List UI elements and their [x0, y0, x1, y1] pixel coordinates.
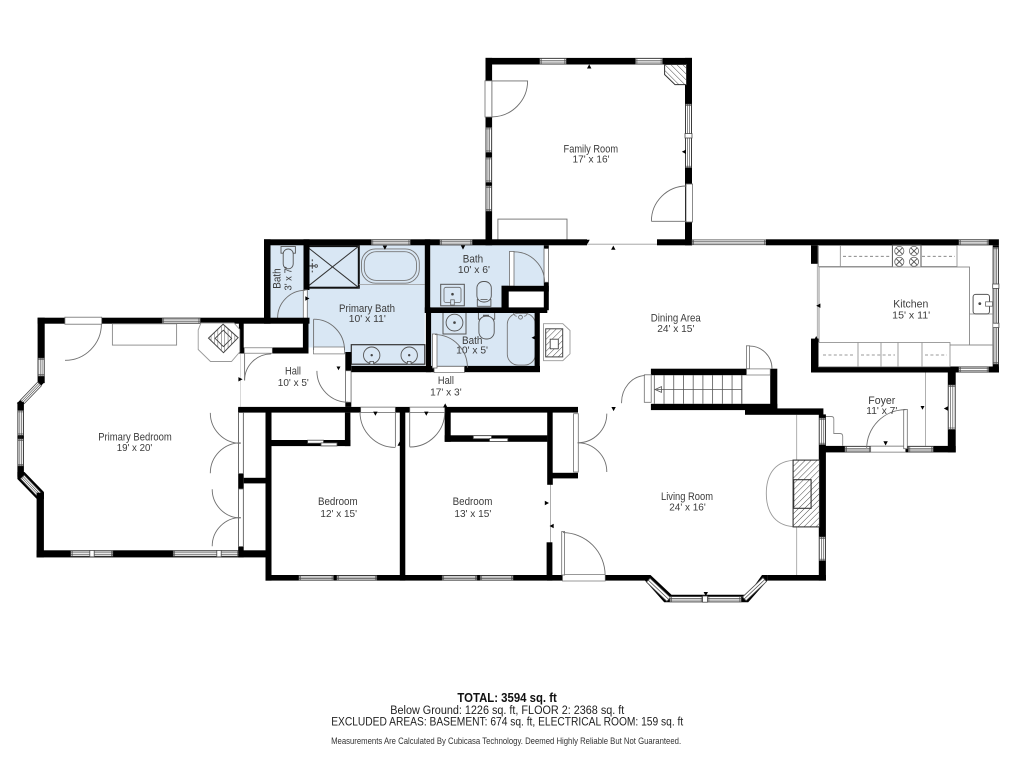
svg-text:Measurements Are Calculated By: Measurements Are Calculated By Cubicasa …	[331, 736, 681, 746]
svg-text:Family Room: Family Room	[564, 143, 619, 155]
svg-text:Bath: Bath	[463, 254, 483, 266]
svg-text:Primary Bath: Primary Bath	[339, 303, 395, 315]
svg-text:11' x 7': 11' x 7'	[866, 406, 897, 417]
svg-text:19' x 20': 19' x 20'	[117, 443, 153, 454]
svg-text:13' x 15': 13' x 15'	[454, 509, 491, 520]
svg-text:Bedroom: Bedroom	[453, 496, 493, 508]
svg-text:10' x 5': 10' x 5'	[278, 378, 309, 389]
svg-text:24' x 15': 24' x 15'	[657, 324, 694, 335]
svg-text:Hall: Hall	[438, 375, 454, 387]
svg-text:15' x 11': 15' x 11'	[892, 310, 930, 321]
svg-text:3' x 7': 3' x 7'	[284, 266, 295, 290]
svg-text:Dining Area: Dining Area	[651, 313, 701, 325]
svg-text:24' x 16': 24' x 16'	[669, 503, 706, 514]
svg-text:Bedroom: Bedroom	[318, 496, 358, 508]
svg-text:10' x 11': 10' x 11'	[349, 314, 386, 325]
svg-text:EXCLUDED AREAS: BASEMENT: 674: EXCLUDED AREAS: BASEMENT: 674 sq. ft, EL…	[331, 715, 684, 729]
svg-text:17' x 16': 17' x 16'	[573, 155, 610, 166]
svg-text:12' x 15': 12' x 15'	[320, 509, 357, 520]
svg-text:Foyer: Foyer	[868, 395, 895, 407]
svg-text:Primary Bedroom: Primary Bedroom	[98, 431, 172, 443]
svg-text:10' x 5': 10' x 5'	[456, 345, 488, 356]
svg-text:Living Room: Living Room	[661, 491, 713, 503]
svg-text:10' x 6': 10' x 6'	[458, 265, 490, 276]
svg-text:Bath: Bath	[272, 268, 284, 288]
svg-text:Hall: Hall	[285, 366, 301, 378]
svg-text:Kitchen: Kitchen	[893, 298, 928, 310]
svg-text:17' x 3': 17' x 3'	[430, 387, 462, 398]
